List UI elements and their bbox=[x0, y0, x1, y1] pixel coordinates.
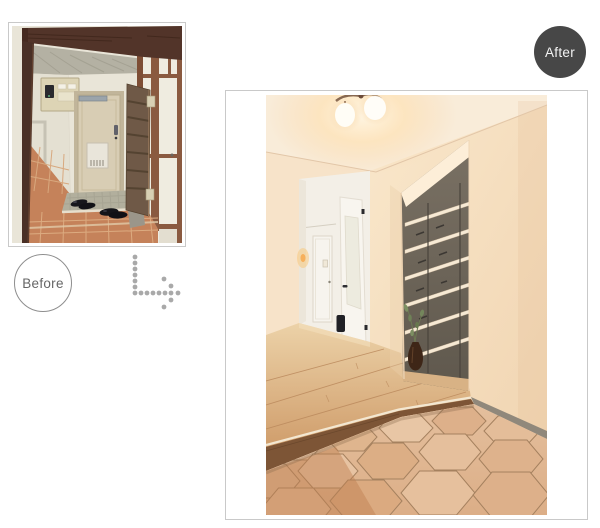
before-photo-card bbox=[8, 22, 186, 247]
dotted-arrow-icon bbox=[128, 250, 184, 312]
before-after-comparison: Before After bbox=[0, 0, 600, 528]
before-badge-label: Before bbox=[22, 276, 64, 291]
after-badge-label: After bbox=[545, 45, 575, 60]
after-photo bbox=[266, 95, 547, 515]
before-badge: Before bbox=[14, 254, 72, 312]
after-badge: After bbox=[534, 26, 586, 78]
wall-sconce-light bbox=[297, 248, 309, 268]
hallway-end-door bbox=[313, 236, 332, 322]
door-lever-handle bbox=[343, 285, 348, 288]
door-closer bbox=[79, 96, 107, 101]
hinge bbox=[147, 96, 155, 107]
hinge bbox=[146, 189, 154, 200]
after-photo-card bbox=[225, 90, 588, 520]
umbrella-stand bbox=[337, 315, 346, 332]
before-photo bbox=[12, 26, 182, 243]
intercom-panel bbox=[323, 260, 328, 267]
hallway-opening bbox=[297, 171, 370, 345]
old-entrance-door bbox=[74, 91, 124, 199]
door-handle bbox=[114, 125, 118, 135]
electrical-panel bbox=[41, 78, 79, 111]
